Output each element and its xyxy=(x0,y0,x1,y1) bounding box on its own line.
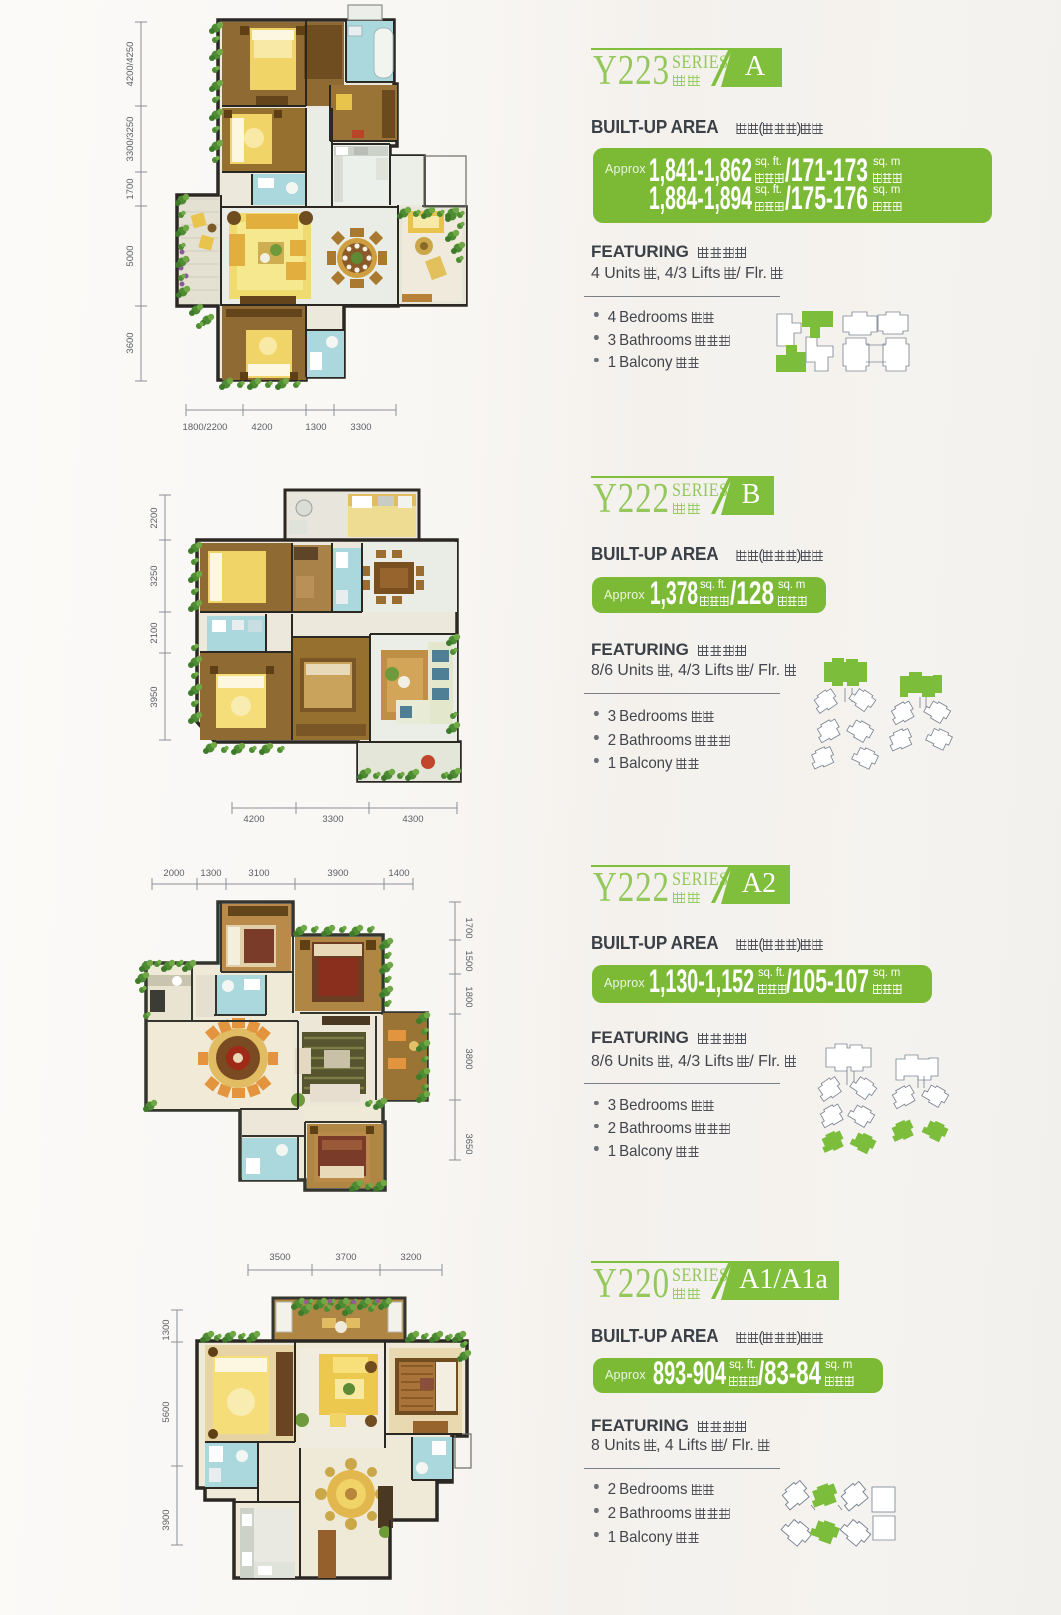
svg-text:3900: 3900 xyxy=(161,1509,172,1530)
svg-text:3650: 3650 xyxy=(463,1133,474,1154)
svg-text:1700: 1700 xyxy=(125,178,136,199)
svg-text:3300/3250: 3300/3250 xyxy=(125,117,136,162)
svg-text:3600: 3600 xyxy=(125,332,136,353)
svg-text:1700: 1700 xyxy=(463,917,474,938)
svg-text:1400: 1400 xyxy=(388,868,409,879)
svg-text:4200/4250: 4200/4250 xyxy=(125,42,136,87)
svg-text:2200: 2200 xyxy=(149,507,160,528)
svg-text:1300: 1300 xyxy=(200,868,221,879)
svg-text:3300: 3300 xyxy=(322,814,343,825)
svg-text:1500: 1500 xyxy=(463,950,474,971)
svg-text:1800/2200: 1800/2200 xyxy=(183,422,228,433)
svg-text:3300: 3300 xyxy=(350,422,371,433)
svg-text:2000: 2000 xyxy=(163,868,184,879)
svg-text:1300: 1300 xyxy=(305,422,326,433)
svg-text:2100: 2100 xyxy=(149,622,160,643)
svg-text:1800: 1800 xyxy=(463,986,474,1007)
svg-text:3100: 3100 xyxy=(248,868,269,879)
svg-text:1300: 1300 xyxy=(161,1319,172,1340)
svg-text:4200: 4200 xyxy=(243,814,264,825)
svg-text:3950: 3950 xyxy=(149,686,160,707)
svg-text:5000: 5000 xyxy=(125,245,136,266)
svg-text:3200: 3200 xyxy=(400,1252,421,1263)
svg-text:5600: 5600 xyxy=(161,1401,172,1422)
svg-text:4300: 4300 xyxy=(402,814,423,825)
svg-text:3800: 3800 xyxy=(463,1048,474,1069)
svg-text:3500: 3500 xyxy=(269,1252,290,1263)
svg-text:4200: 4200 xyxy=(251,422,272,433)
svg-text:3700: 3700 xyxy=(335,1252,356,1263)
svg-text:3900: 3900 xyxy=(327,868,348,879)
svg-text:3250: 3250 xyxy=(149,565,160,586)
